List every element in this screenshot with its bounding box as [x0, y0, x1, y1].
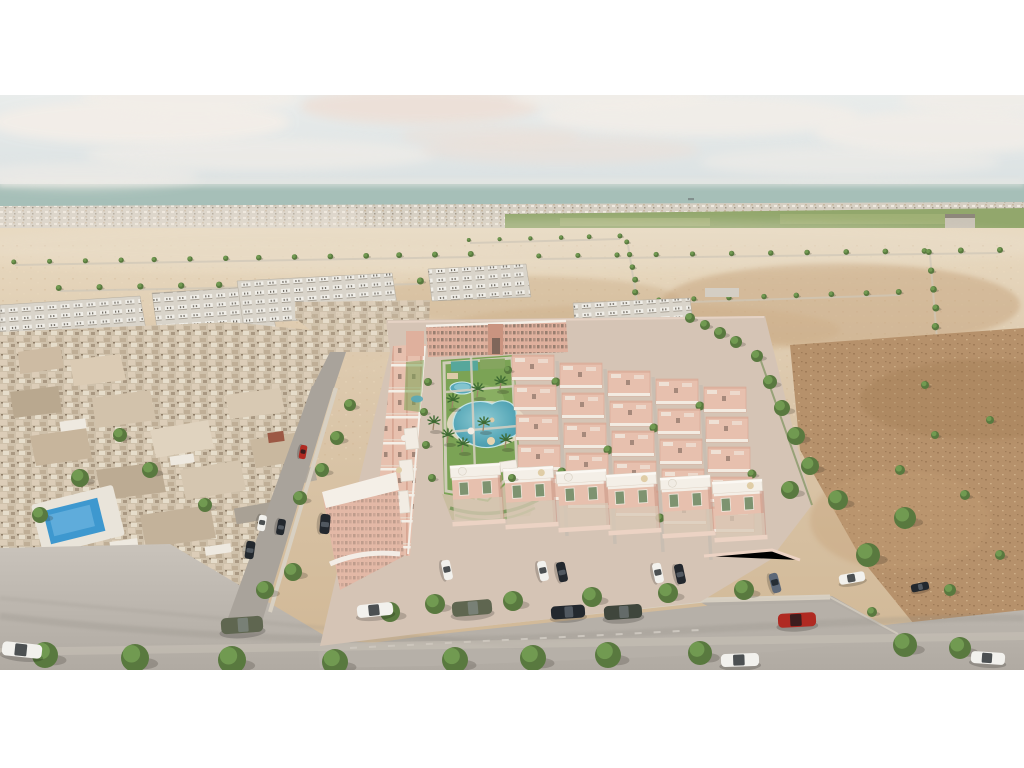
townhouse-block	[612, 431, 654, 456]
roof-parapet	[592, 457, 602, 461]
roof-parapet	[567, 426, 577, 430]
tree-highlight	[654, 252, 657, 255]
townhouse-block	[608, 371, 650, 396]
car-highlight	[237, 618, 248, 633]
parasol	[487, 437, 495, 445]
roof-parapet	[569, 456, 579, 460]
tree-highlight	[627, 252, 630, 255]
townhouse-window	[678, 448, 682, 453]
distant-barn-roof	[945, 214, 975, 218]
tree-highlight	[618, 234, 621, 237]
tree-highlight	[498, 237, 501, 240]
roof-parapet	[686, 443, 696, 447]
villa	[449, 463, 506, 527]
render-canvas	[0, 0, 1024, 768]
villa-window	[512, 485, 522, 499]
townhouse-front	[610, 423, 652, 426]
car-highlight	[467, 601, 478, 615]
tree-highlight	[987, 416, 992, 421]
tree-highlight	[690, 642, 705, 657]
parasol	[668, 479, 676, 487]
tree-highlight	[896, 289, 900, 293]
roof-parapet	[613, 404, 623, 408]
car-highlight	[564, 606, 573, 618]
townhouse-north-shadow	[656, 379, 698, 381]
palm-shadow	[459, 452, 471, 456]
roof-parapet	[636, 405, 646, 409]
tree-highlight	[97, 284, 101, 288]
townhouse-block	[514, 385, 556, 410]
roof-parapet	[515, 358, 525, 362]
car-windshield	[368, 604, 380, 616]
townhouse-window	[628, 410, 632, 415]
townhouse-north-shadow	[516, 415, 558, 417]
tree-highlight	[633, 289, 637, 293]
tree-highlight	[633, 277, 637, 281]
townhouse-window	[534, 424, 538, 429]
tree-highlight	[138, 284, 142, 288]
tree-highlight	[932, 431, 937, 436]
car-windshield	[847, 574, 856, 583]
roof-parapet	[586, 367, 596, 371]
tree-highlight	[119, 258, 122, 261]
townhouse-front	[704, 409, 746, 412]
tree-highlight	[729, 251, 732, 254]
tree-highlight	[922, 381, 927, 386]
roof-parapet	[661, 412, 671, 416]
townhouse-block	[560, 363, 602, 388]
townhouse-front	[512, 377, 554, 380]
townhouse-north-shadow	[562, 393, 604, 395]
tree-highlight	[505, 366, 510, 371]
tree-highlight	[429, 474, 434, 479]
play-sandpit	[447, 373, 458, 379]
townhouse-front	[608, 393, 650, 396]
townhouse-front	[708, 469, 750, 472]
townhouse-north-shadow	[710, 477, 752, 479]
villa	[605, 472, 662, 536]
pool-island	[490, 418, 495, 423]
distant-ship	[688, 198, 694, 200]
tree-highlight	[932, 323, 937, 328]
roof-parapet	[590, 427, 600, 431]
palm-shadow	[449, 408, 461, 412]
roof-parapet	[640, 465, 650, 469]
townhouse-north-shadow	[564, 423, 606, 425]
tree-highlight	[467, 238, 469, 240]
tree-highlight	[829, 491, 841, 503]
tree-highlight	[650, 424, 656, 430]
townhouse-front	[560, 385, 602, 388]
townhouse-window	[626, 380, 630, 385]
roof-parapet	[682, 383, 692, 387]
townhouse-block	[518, 445, 560, 470]
tree-highlight	[805, 250, 808, 253]
apartment-block	[406, 321, 568, 357]
roof-parapet	[521, 448, 531, 452]
townhouse-block	[564, 423, 606, 448]
palm-shadow	[502, 448, 514, 452]
tree-highlight	[33, 508, 43, 518]
townhouse-north-shadow	[708, 447, 750, 449]
townhouse-window	[676, 418, 680, 423]
roof-parapet	[588, 397, 598, 401]
parasol	[396, 467, 402, 473]
tree-highlight	[794, 293, 797, 296]
tree-highlight	[114, 429, 123, 438]
townhouse-north-shadow	[660, 439, 702, 441]
tree-highlight	[997, 247, 1001, 251]
townhouse-north-shadow	[614, 461, 656, 463]
tree-highlight	[537, 254, 540, 257]
tree-highlight	[883, 249, 887, 253]
tree-highlight	[895, 634, 910, 649]
car-windshield	[14, 643, 27, 656]
villa-window	[721, 498, 731, 512]
tree-highlight	[509, 474, 514, 479]
villa-window	[482, 481, 492, 495]
roof-parapet	[542, 419, 552, 423]
tree-highlight	[528, 236, 531, 239]
tree-highlight	[961, 490, 967, 496]
tree-highlight	[829, 292, 833, 296]
townhouse-front	[514, 407, 556, 410]
nw-small-pool	[411, 396, 423, 403]
tree-highlight	[72, 470, 83, 481]
play-lawn	[480, 359, 505, 370]
townhouse-window	[578, 372, 582, 377]
roof-parapet	[638, 435, 648, 439]
roof-parapet	[659, 382, 669, 386]
tree-highlight	[552, 378, 558, 384]
townhouse-north-shadow	[608, 371, 650, 373]
roof-parapet	[538, 359, 548, 363]
tree-highlight	[690, 252, 693, 255]
townhouse-front	[612, 453, 654, 456]
townhouse-window	[580, 402, 584, 407]
villa	[711, 479, 768, 543]
warehouse	[705, 288, 739, 297]
tree-highlight	[426, 595, 438, 607]
roof-parapet	[634, 375, 644, 379]
tree-highlight	[417, 278, 421, 282]
townhouse-block	[704, 387, 746, 412]
tree-highlight	[432, 252, 436, 256]
villa-window	[565, 488, 575, 502]
tree-highlight	[47, 259, 50, 262]
townhouse-window	[726, 456, 730, 461]
roof-parapet	[663, 442, 673, 446]
parasol	[564, 473, 572, 481]
townhouse-block	[658, 409, 700, 434]
tree-highlight	[931, 286, 935, 290]
tree-highlight	[864, 290, 868, 294]
tree-highlight	[604, 446, 610, 452]
tree-highlight	[858, 544, 873, 559]
townhouse-north-shadow	[566, 453, 608, 455]
townhouse-front	[706, 439, 748, 442]
villa	[659, 475, 716, 539]
tree-highlight	[630, 265, 633, 268]
roof-parapet	[730, 391, 740, 395]
parasol	[458, 467, 466, 475]
tree-highlight	[996, 550, 1002, 556]
tree-highlight	[256, 255, 259, 258]
car-windshield	[733, 654, 745, 665]
palm-shadow	[430, 430, 442, 434]
tree-highlight	[364, 253, 368, 257]
white-cluster	[428, 264, 531, 301]
townhouse-block	[512, 355, 554, 380]
top-letterbox	[0, 0, 1024, 95]
tree-highlight	[444, 648, 460, 664]
tree-highlight	[788, 428, 799, 439]
villa-window	[459, 482, 469, 496]
tree-highlight	[868, 607, 874, 613]
tree-highlight	[216, 282, 220, 286]
tree-highlight	[559, 235, 562, 238]
tree-highlight	[468, 251, 472, 255]
palm-shadow	[444, 443, 456, 447]
roof-parapet	[707, 390, 717, 394]
tree-highlight	[123, 645, 140, 662]
parasol	[401, 435, 407, 441]
villa-window	[638, 490, 648, 504]
tree-highlight	[686, 313, 692, 319]
car-highlight	[321, 522, 329, 528]
tree-highlight	[715, 327, 722, 334]
aerial-render-image	[0, 0, 1024, 768]
tree-highlight	[199, 499, 208, 508]
tree-highlight	[257, 582, 268, 593]
roof-parapet	[709, 420, 719, 424]
roof-parapet	[544, 449, 554, 453]
townhouse-window	[584, 462, 588, 467]
tree-highlight	[950, 638, 964, 652]
townhouse-window	[722, 396, 726, 401]
townhouse-front	[658, 431, 700, 434]
roof-parapet	[684, 413, 694, 417]
townhouse-block	[610, 401, 652, 426]
palm-shadow	[497, 390, 509, 394]
tree-highlight	[56, 285, 60, 289]
tree-highlight	[587, 235, 590, 238]
tree-highlight	[597, 643, 613, 659]
townhouse-north-shadow	[612, 431, 654, 433]
bottom-letterbox	[0, 670, 1024, 768]
tree-highlight	[397, 253, 401, 257]
tree-highlight	[423, 441, 428, 446]
villa-window	[588, 487, 598, 501]
tree-highlight	[223, 256, 226, 259]
roof-parapet	[611, 374, 621, 378]
car-windshield	[982, 653, 993, 664]
tree-highlight	[143, 463, 153, 473]
tree-highlight	[152, 257, 155, 260]
sports-court	[451, 361, 478, 372]
tree-highlight	[896, 465, 902, 471]
tree-highlight	[696, 402, 702, 408]
tree-highlight	[692, 296, 695, 299]
townhouse-window	[724, 426, 728, 431]
roof-parapet	[732, 421, 742, 425]
roof-parapet	[734, 451, 744, 455]
tree-highlight	[731, 336, 738, 343]
townhouse-window	[532, 394, 536, 399]
tree-highlight	[294, 492, 303, 501]
tree-highlight	[844, 249, 848, 253]
townhouse-front	[564, 445, 606, 448]
tree-highlight	[316, 464, 325, 473]
tree-highlight	[324, 650, 340, 666]
roof-parapet	[563, 366, 573, 370]
tree-highlight	[285, 564, 296, 575]
villa-window	[615, 491, 625, 505]
tree-highlight	[12, 260, 15, 263]
roof-parapet	[711, 450, 721, 454]
townhouse-north-shadow	[610, 401, 652, 403]
cloud	[700, 147, 1000, 177]
cloud	[400, 125, 580, 147]
villa-window	[744, 497, 754, 511]
tree-highlight	[615, 253, 618, 256]
tree-highlight	[701, 320, 707, 326]
townhouse-north-shadow	[662, 469, 704, 471]
parasol	[468, 428, 475, 435]
roof-parapet	[665, 472, 675, 476]
townhouse-north-shadow	[560, 363, 602, 365]
tree-highlight	[928, 268, 932, 272]
townhouse-window	[674, 388, 678, 393]
villa-window	[669, 494, 679, 508]
tree-highlight	[752, 350, 759, 357]
tree-highlight	[768, 250, 771, 253]
townhouse-block	[708, 447, 750, 472]
townhouse-window	[582, 432, 586, 437]
townhouse-front	[516, 437, 558, 440]
palm-shadow	[480, 431, 492, 435]
tree-highlight	[220, 647, 237, 664]
car-highlight	[619, 606, 629, 619]
tree-highlight	[576, 253, 579, 256]
tree-highlight	[926, 249, 930, 253]
townhouse-window	[530, 364, 534, 369]
townhouse-window	[536, 454, 540, 459]
townhouse-north-shadow	[518, 445, 560, 447]
townhouse-north-shadow	[704, 387, 746, 389]
tree-highlight	[178, 283, 182, 287]
tree-highlight	[775, 401, 785, 411]
palm-shadow	[474, 397, 486, 401]
tree-highlight	[292, 254, 295, 257]
tree-highlight	[421, 408, 426, 413]
townhouse-north-shadow	[512, 355, 554, 357]
tree-highlight	[762, 294, 765, 297]
tree-highlight	[945, 584, 952, 591]
tree-highlight	[802, 458, 813, 469]
tree-highlight	[958, 248, 962, 252]
tree-highlight	[922, 248, 926, 252]
townhouse-block	[706, 417, 748, 442]
roof-parapet	[517, 388, 527, 392]
tree-highlight	[425, 378, 430, 383]
roof-parapet	[519, 418, 529, 422]
tree-highlight	[583, 588, 595, 600]
tree-highlight	[83, 258, 86, 261]
scene	[0, 82, 1024, 675]
roof-parapet	[540, 389, 550, 393]
villa-window	[535, 484, 545, 498]
tree-highlight	[748, 470, 754, 476]
tree-highlight	[328, 254, 332, 258]
townhouse-window	[630, 440, 634, 445]
tree-highlight	[933, 305, 937, 309]
tree-highlight	[895, 508, 909, 522]
car	[719, 653, 761, 672]
townhouse-north-shadow	[514, 385, 556, 387]
roof-parapet	[615, 434, 625, 438]
field-stripe	[780, 214, 960, 224]
townhouse-front	[660, 461, 702, 464]
townhouse-block	[660, 439, 702, 464]
tree-highlight	[764, 376, 773, 385]
roof-parapet	[617, 464, 627, 468]
townhouse-block	[516, 415, 558, 440]
tree-highlight	[522, 646, 538, 662]
townhouse-block	[656, 379, 698, 404]
tree-highlight	[659, 584, 671, 596]
townhouse-north-shadow	[658, 409, 700, 411]
tree-highlight	[735, 581, 747, 593]
townhouse-north-shadow	[706, 417, 748, 419]
tree-highlight	[625, 240, 628, 243]
villa-window	[692, 493, 702, 507]
tree-highlight	[504, 592, 516, 604]
tree-highlight	[782, 482, 793, 493]
roof-parapet	[565, 396, 575, 400]
apartment-entrance	[492, 338, 500, 354]
tree-highlight	[188, 256, 191, 259]
townhouse-front	[562, 415, 604, 418]
townhouse-front	[656, 401, 698, 404]
tree-highlight	[331, 432, 340, 441]
apartment-annex	[406, 331, 424, 356]
townhouse-block	[562, 393, 604, 418]
tree-highlight	[345, 399, 352, 406]
car-windshield	[790, 614, 802, 627]
villa	[555, 469, 612, 533]
